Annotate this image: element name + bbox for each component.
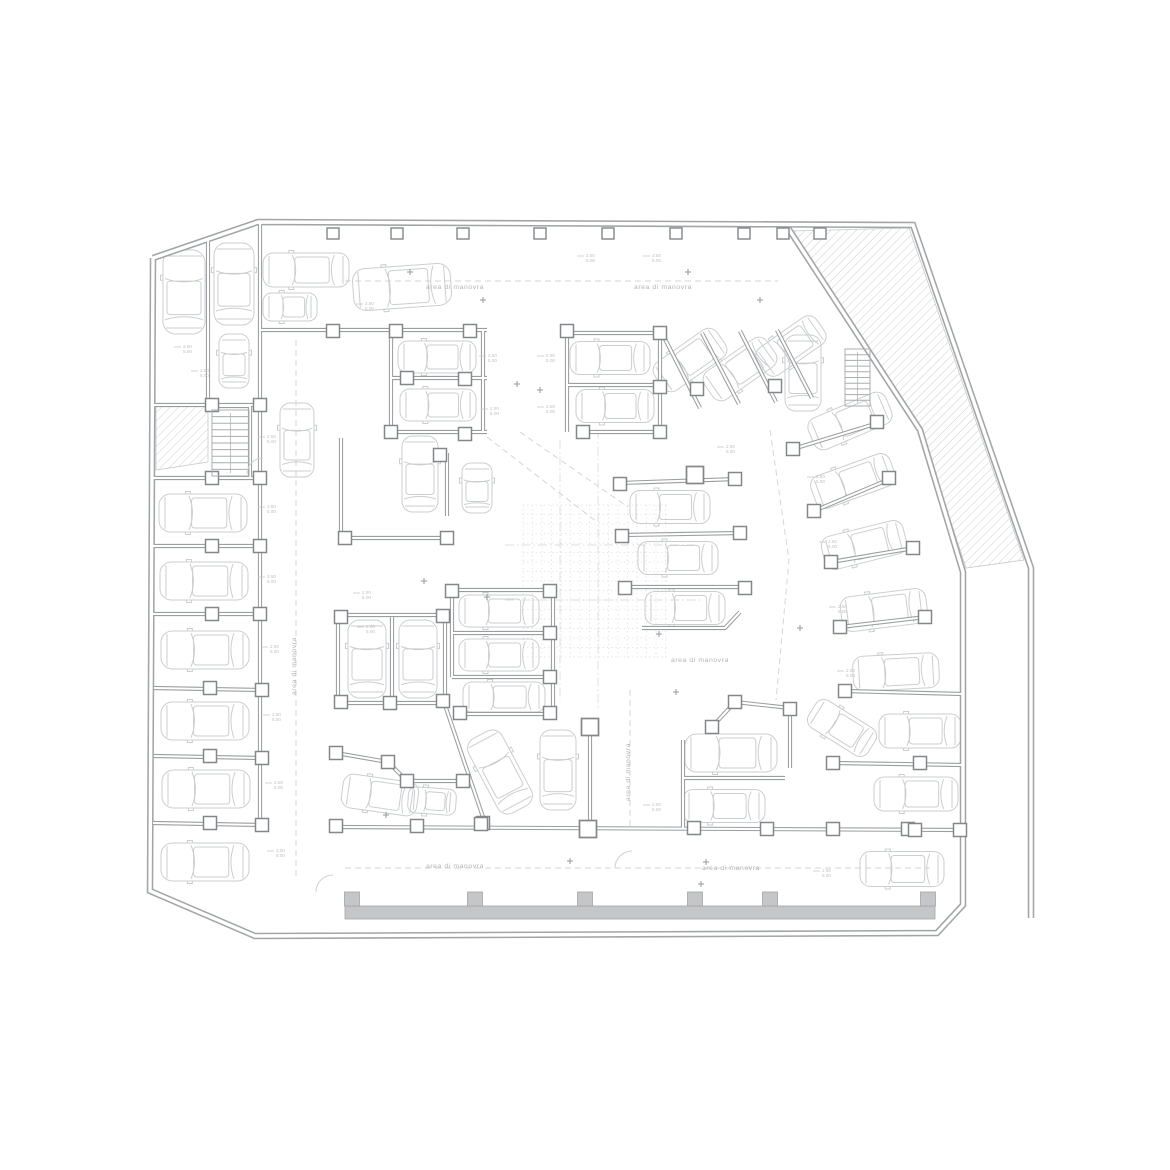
structural-column <box>256 752 269 765</box>
parked-car <box>803 694 882 762</box>
structural-column <box>654 381 667 394</box>
structural-column <box>544 671 557 684</box>
parked-car <box>463 680 545 715</box>
structural-column <box>411 820 424 833</box>
floor-drain-marker <box>421 578 427 584</box>
stall-dimension-label: 2.505.00 <box>263 712 281 722</box>
structural-column <box>256 819 269 832</box>
structural-column <box>839 685 852 698</box>
structural-column <box>437 610 450 623</box>
structural-column <box>204 682 217 695</box>
svg-text:5.00: 5.00 <box>828 544 837 549</box>
structural-column <box>544 585 557 598</box>
cars-layer <box>159 243 961 889</box>
parked-car <box>783 335 824 411</box>
stall-dimension-label: 2.505.00 <box>353 590 371 600</box>
structural-column-large <box>582 719 599 736</box>
svg-text:5.00: 5.00 <box>272 717 281 722</box>
structural-column <box>787 443 800 456</box>
aisle-label: area di manovra <box>671 657 729 664</box>
aisle-label: area di manovra <box>426 284 484 291</box>
structural-column <box>254 540 267 553</box>
ramp-hatch-area <box>792 228 1024 568</box>
svg-text:5.00: 5.00 <box>546 358 555 363</box>
parked-car <box>683 787 765 825</box>
parked-car <box>263 291 317 324</box>
parked-car <box>160 560 248 603</box>
svg-text:5.00: 5.00 <box>270 649 279 654</box>
stall-dimension-label: 2.505.00 <box>265 780 283 790</box>
structural-column <box>561 325 574 338</box>
parked-car <box>159 492 247 535</box>
staircase <box>845 349 870 406</box>
parked-car <box>460 463 495 513</box>
structural-column <box>619 582 632 595</box>
stall-dimension-label: 2.505.00 <box>837 668 855 678</box>
structural-column <box>254 608 267 621</box>
structural-column <box>827 757 840 770</box>
top-wall-pilaster <box>534 228 546 239</box>
svg-text:5.00: 5.00 <box>183 349 192 354</box>
parked-car <box>645 589 725 627</box>
parked-car <box>161 629 249 672</box>
svg-text:5.00: 5.00 <box>267 439 276 444</box>
stall-dimension-label: 2.505.00 <box>577 253 595 263</box>
stall-dimension-label: 2.505.00 <box>356 301 374 311</box>
stall-dimension-label: 2.505.00 <box>829 604 847 614</box>
svg-text:5.00: 5.00 <box>267 579 276 584</box>
svg-text:5.00: 5.00 <box>726 449 735 454</box>
svg-text:5.00: 5.00 <box>546 409 555 414</box>
bottom-wall-pilaster <box>763 892 778 906</box>
aisle-label: area di manovra <box>634 284 692 291</box>
svg-text:5.00: 5.00 <box>490 411 499 416</box>
structural-column <box>827 823 840 836</box>
structural-column <box>204 817 217 830</box>
stall-dimension-label: 2.505.00 <box>537 404 555 414</box>
aisle-label: area di manovra <box>291 637 298 695</box>
parked-car <box>407 784 457 818</box>
parked-car <box>459 593 539 630</box>
structural-column <box>688 822 701 835</box>
structural-column <box>769 380 782 393</box>
parked-car <box>461 725 538 819</box>
top-wall-pilaster <box>391 228 403 239</box>
structural-column <box>335 611 348 624</box>
aisle-labels-layer: area di manovraarea di manovraarea di ma… <box>291 284 760 872</box>
structural-column <box>441 532 454 545</box>
svg-text:5.00: 5.00 <box>366 629 375 634</box>
parked-car <box>263 251 349 290</box>
structural-column <box>335 696 348 709</box>
door-swing-arc <box>316 875 333 892</box>
structural-column <box>454 707 467 720</box>
floor-drain-marker <box>480 297 486 303</box>
structural-column <box>401 775 414 788</box>
structural-column <box>761 823 774 836</box>
structural-column <box>327 325 340 338</box>
structural-column <box>339 532 352 545</box>
aisle-guide-line <box>770 430 789 700</box>
structural-column <box>459 428 472 441</box>
parked-car <box>576 387 654 425</box>
structural-column <box>729 473 742 486</box>
structural-column <box>734 527 747 540</box>
structural-column <box>457 775 470 788</box>
parked-car <box>400 436 441 512</box>
svg-text:5.00: 5.00 <box>276 853 285 858</box>
structural-column <box>834 621 847 634</box>
stall-dimension-label: 2.505.00 <box>174 344 192 354</box>
structural-column <box>691 383 704 396</box>
aisle-label: area di manovra <box>625 743 632 801</box>
floor-drain-marker <box>698 881 704 887</box>
door-swing-arc <box>615 851 632 868</box>
parked-car <box>630 488 710 526</box>
structural-column <box>384 697 397 710</box>
svg-text:5.00: 5.00 <box>365 306 374 311</box>
structural-column <box>616 530 629 543</box>
floor-drain-marker <box>673 689 679 695</box>
parked-car <box>278 403 317 477</box>
parked-car <box>161 700 249 743</box>
parked-car <box>860 849 944 889</box>
structural-column <box>808 505 821 518</box>
parked-car <box>162 768 250 811</box>
parked-car <box>217 334 252 388</box>
floor-drain-marker <box>685 269 691 275</box>
svg-text:5.00: 5.00 <box>652 807 661 812</box>
svg-text:5.00: 5.00 <box>362 595 371 600</box>
structural-column <box>206 540 219 553</box>
top-wall-pilaster <box>602 228 614 239</box>
structural-column <box>459 373 472 386</box>
svg-text:5.00: 5.00 <box>488 358 497 363</box>
top-wall-pilaster <box>457 228 469 239</box>
bottom-wall-pilaster <box>468 892 483 906</box>
top-wall-pilaster <box>327 228 339 239</box>
structural-column <box>907 542 920 555</box>
bottom-wall-pilaster <box>921 892 936 906</box>
stall-dimension-label: 2.505.00 <box>267 848 285 858</box>
stall-dimension-label: 2.505.00 <box>807 474 825 484</box>
structural-column <box>446 585 459 598</box>
svg-text:5.00: 5.00 <box>846 673 855 678</box>
structural-column <box>883 472 896 485</box>
structural-column <box>437 695 450 708</box>
structural-column <box>577 426 590 439</box>
svg-text:5.00: 5.00 <box>816 479 825 484</box>
floor-drain-marker <box>537 387 543 393</box>
parked-car <box>698 331 783 407</box>
stall-dimension-label: 2.505.00 <box>537 353 555 363</box>
structural-column-large <box>687 467 704 484</box>
top-wall-pilaster <box>814 228 826 239</box>
floor-drain-marker <box>797 625 803 631</box>
structural-column <box>954 824 967 837</box>
parked-car <box>397 620 440 698</box>
top-wall-pilaster <box>670 228 682 239</box>
structural-column <box>390 325 403 338</box>
structural-column <box>914 757 927 770</box>
floor-drain-marker <box>514 381 520 387</box>
floor-drain-marker <box>567 858 573 864</box>
svg-text:5.00: 5.00 <box>652 258 661 263</box>
structural-column <box>385 426 398 439</box>
stall-dimension-label: 2.505.00 <box>717 444 735 454</box>
bottom-wall-pilaster <box>345 892 360 906</box>
structural-column-large <box>580 821 597 838</box>
bottom-wall-band-layer <box>345 892 936 919</box>
structural-column <box>206 608 219 621</box>
parked-car <box>570 339 650 377</box>
svg-text:5.00: 5.00 <box>586 258 595 263</box>
parked-car <box>852 650 940 694</box>
stall-dimension-label: 2.505.00 <box>643 802 661 812</box>
structural-column <box>544 707 557 720</box>
parked-car <box>400 387 476 424</box>
structural-column <box>919 611 932 624</box>
cross-markers-layer <box>383 269 803 887</box>
parked-car <box>398 339 476 376</box>
floor-plan-svg: 2.505.002.505.002.505.002.505.002.505.00… <box>0 0 1170 1170</box>
structural-column <box>729 696 742 709</box>
structural-column <box>544 627 557 640</box>
top-wall-pilaster <box>738 228 750 239</box>
structural-column <box>654 426 667 439</box>
aisle-label: area di manovra <box>426 863 484 870</box>
parked-car <box>459 637 539 674</box>
parked-car <box>161 250 208 334</box>
structural-column <box>654 327 667 340</box>
svg-text:5.00: 5.00 <box>200 373 209 378</box>
structural-column <box>204 750 217 763</box>
bottom-wall-pilaster <box>578 892 593 906</box>
structural-column <box>256 684 269 697</box>
floor-plan-canvas: 2.505.002.505.002.505.002.505.002.505.00… <box>0 0 1170 1170</box>
svg-text:5.00: 5.00 <box>822 873 831 878</box>
bottom-wall-pilaster <box>688 892 703 906</box>
structural-column <box>330 747 343 760</box>
stall-dimension-label: 2.505.00 <box>261 644 279 654</box>
floor-drain-marker <box>656 631 662 637</box>
staircase <box>212 410 249 476</box>
parked-car <box>879 712 961 751</box>
bottom-thick-wall <box>345 906 935 919</box>
structural-column <box>739 582 752 595</box>
structural-column <box>909 824 922 837</box>
structural-column <box>706 721 719 734</box>
svg-text:5.00: 5.00 <box>267 509 276 514</box>
aisle-guide-line <box>520 432 628 507</box>
parked-car <box>212 243 257 325</box>
structural-column <box>825 556 838 569</box>
ramp-hatch-area <box>156 405 208 470</box>
structural-column <box>871 416 884 429</box>
top-wall-pilaster <box>777 228 789 239</box>
structural-column <box>382 756 395 769</box>
structural-column <box>254 399 267 412</box>
stall-dimension-label: 2.505.00 <box>643 253 661 263</box>
stall-dimension-label: 2.505.00 <box>813 868 831 878</box>
aisle-label: area di manovra <box>702 865 760 872</box>
structural-column <box>434 449 447 462</box>
structural-column <box>464 325 477 338</box>
parked-car <box>161 841 249 884</box>
stall-dimension-label: 2.505.00 <box>191 368 209 378</box>
parked-car <box>874 775 958 814</box>
svg-text:5.00: 5.00 <box>274 785 283 790</box>
structural-column <box>614 478 627 491</box>
parked-car <box>538 730 579 810</box>
floor-drain-marker <box>757 297 763 303</box>
structural-column <box>330 820 343 833</box>
structural-column <box>784 703 797 716</box>
structural-column <box>401 372 414 385</box>
parked-car <box>685 732 777 775</box>
svg-text:5.00: 5.00 <box>838 609 847 614</box>
structural-column <box>475 818 488 831</box>
structural-column <box>254 472 267 485</box>
